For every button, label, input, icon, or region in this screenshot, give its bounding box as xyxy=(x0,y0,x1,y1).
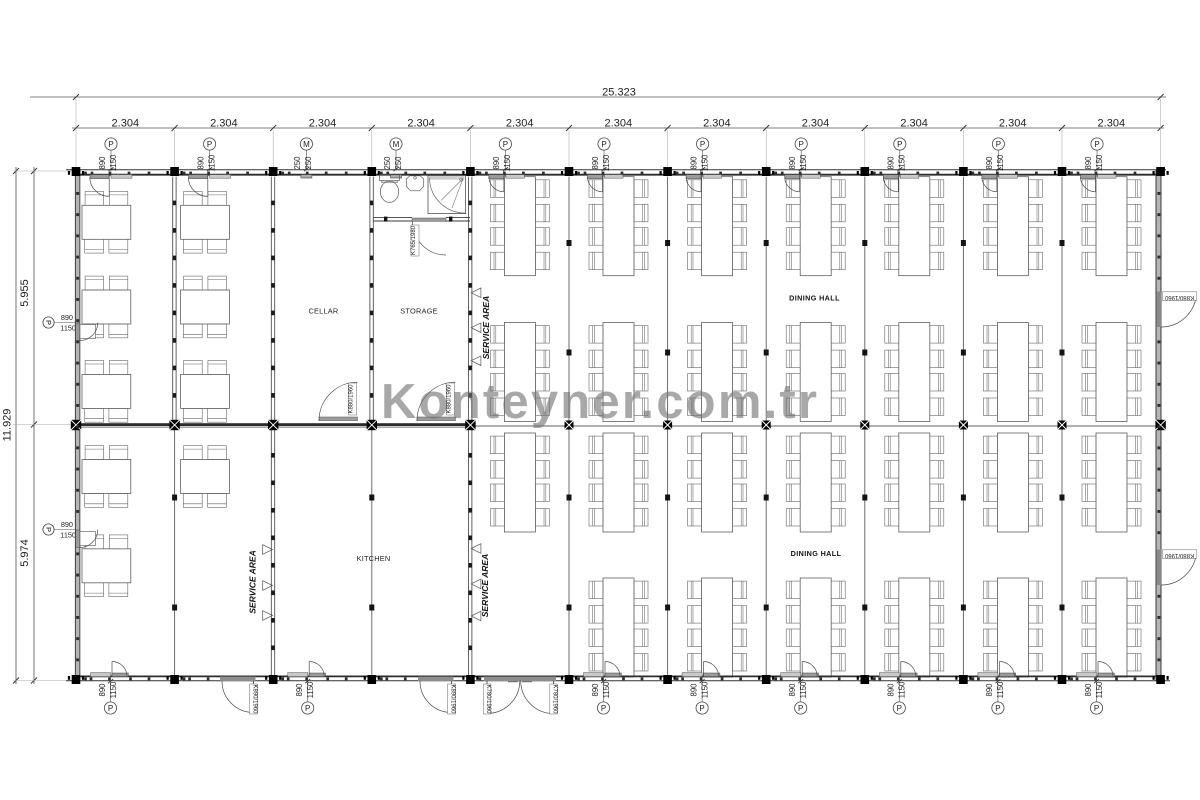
svg-text:5.974: 5.974 xyxy=(19,539,31,567)
svg-text:K890/1960: K890/1960 xyxy=(450,684,456,714)
svg-text:P: P xyxy=(108,140,113,149)
svg-text:P: P xyxy=(305,704,310,713)
svg-text:890: 890 xyxy=(985,683,994,697)
svg-text:K880/1960: K880/1960 xyxy=(1164,552,1194,558)
svg-text:1150: 1150 xyxy=(602,681,611,698)
svg-text:890: 890 xyxy=(591,156,600,170)
svg-text:2.304: 2.304 xyxy=(210,118,238,130)
svg-text:2.304: 2.304 xyxy=(900,118,928,130)
svg-text:K890/1960: K890/1960 xyxy=(252,684,258,714)
svg-text:890: 890 xyxy=(196,156,205,170)
svg-text:SERVICE AREA: SERVICE AREA xyxy=(480,554,490,617)
svg-text:890: 890 xyxy=(98,683,107,697)
svg-text:11.929: 11.929 xyxy=(2,409,14,442)
svg-text:1150: 1150 xyxy=(1095,681,1104,698)
svg-text:2.304: 2.304 xyxy=(1098,118,1126,130)
svg-text:890: 890 xyxy=(985,156,994,170)
svg-text:890: 890 xyxy=(1084,156,1093,170)
svg-text:1150: 1150 xyxy=(503,154,512,171)
svg-text:2.304: 2.304 xyxy=(802,118,830,130)
svg-text:890: 890 xyxy=(295,683,304,697)
svg-text:M: M xyxy=(393,140,400,149)
svg-text:KITCHEN: KITCHEN xyxy=(357,554,391,563)
svg-text:250: 250 xyxy=(383,156,392,170)
svg-text:890: 890 xyxy=(788,156,797,170)
svg-text:P: P xyxy=(799,140,804,149)
svg-text:P: P xyxy=(897,704,902,713)
svg-text:250: 250 xyxy=(293,156,302,170)
svg-text:K780/1960: K780/1960 xyxy=(485,684,491,714)
svg-text:P: P xyxy=(503,140,508,149)
svg-text:2.304: 2.304 xyxy=(703,118,731,130)
svg-text:2.304: 2.304 xyxy=(506,118,534,130)
svg-text:P: P xyxy=(798,704,803,713)
svg-text:2.304: 2.304 xyxy=(112,118,140,130)
svg-text:P: P xyxy=(700,140,705,149)
svg-text:2.304: 2.304 xyxy=(605,118,633,130)
svg-text:STORAGE: STORAGE xyxy=(400,307,437,316)
svg-text:1150: 1150 xyxy=(207,154,216,171)
svg-text:1150: 1150 xyxy=(898,681,907,698)
svg-text:250: 250 xyxy=(304,156,313,170)
svg-text:K880/1960: K880/1960 xyxy=(1164,294,1194,300)
svg-text:P: P xyxy=(108,704,113,713)
svg-text:P: P xyxy=(897,140,902,149)
svg-text:1150: 1150 xyxy=(60,531,76,540)
svg-text:890: 890 xyxy=(689,683,698,697)
svg-text:1150: 1150 xyxy=(898,154,907,171)
svg-text:P: P xyxy=(995,704,1000,713)
svg-text:2.304: 2.304 xyxy=(407,118,435,130)
svg-text:890: 890 xyxy=(98,156,107,170)
svg-text:1150: 1150 xyxy=(996,154,1005,171)
svg-text:1150: 1150 xyxy=(1095,154,1104,171)
svg-text:1150: 1150 xyxy=(109,154,118,171)
svg-text:P: P xyxy=(1094,140,1099,149)
svg-text:250: 250 xyxy=(394,156,403,170)
svg-text:K780/1960: K780/1960 xyxy=(552,684,558,714)
svg-text:890: 890 xyxy=(887,156,896,170)
svg-text:P: P xyxy=(44,320,53,325)
svg-text:1150: 1150 xyxy=(799,681,808,698)
svg-text:1150: 1150 xyxy=(109,681,118,698)
svg-text:DINING HALL: DINING HALL xyxy=(791,549,842,558)
svg-text:P: P xyxy=(1094,704,1099,713)
svg-text:P: P xyxy=(996,140,1001,149)
svg-text:25.323: 25.323 xyxy=(602,87,636,99)
svg-text:1150: 1150 xyxy=(602,154,611,171)
svg-text:890: 890 xyxy=(61,520,73,529)
svg-text:5.955: 5.955 xyxy=(19,279,31,307)
svg-text:P: P xyxy=(207,140,212,149)
svg-text:890: 890 xyxy=(788,683,797,697)
svg-text:P: P xyxy=(699,704,704,713)
svg-text:M: M xyxy=(303,140,310,149)
svg-text:890: 890 xyxy=(689,156,698,170)
svg-text:1150: 1150 xyxy=(700,154,709,171)
svg-text:P: P xyxy=(601,140,606,149)
svg-text:P: P xyxy=(44,527,53,532)
svg-text:CELLAR: CELLAR xyxy=(309,307,339,316)
svg-text:K880/1960: K880/1960 xyxy=(349,384,355,414)
svg-text:1150: 1150 xyxy=(799,154,808,171)
svg-text:SERVICE AREA: SERVICE AREA xyxy=(248,550,258,613)
svg-text:P: P xyxy=(601,704,606,713)
svg-text:1150: 1150 xyxy=(996,681,1005,698)
svg-text:890: 890 xyxy=(61,313,73,322)
svg-text:890: 890 xyxy=(1084,683,1093,697)
svg-text:Konteyner.com.tr: Konteyner.com.tr xyxy=(381,375,819,429)
svg-text:1150: 1150 xyxy=(700,681,709,698)
svg-text:1150: 1150 xyxy=(306,681,315,698)
svg-text:2.304: 2.304 xyxy=(999,118,1027,130)
svg-text:K765/1980: K765/1980 xyxy=(411,225,417,255)
svg-text:SERVICE AREA: SERVICE AREA xyxy=(481,296,491,359)
svg-text:890: 890 xyxy=(492,156,501,170)
svg-text:DINING HALL: DINING HALL xyxy=(789,294,840,303)
svg-text:890: 890 xyxy=(591,683,600,697)
svg-text:890: 890 xyxy=(887,683,896,697)
svg-text:1150: 1150 xyxy=(60,324,76,333)
svg-text:2.304: 2.304 xyxy=(309,118,337,130)
